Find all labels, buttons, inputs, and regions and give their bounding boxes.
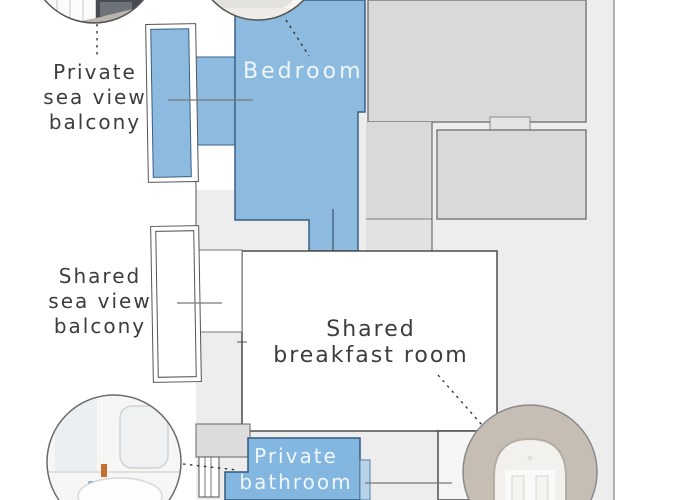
- shared-balcony-label: Shared sea view balcony: [15, 264, 185, 339]
- vestibule-upper: [366, 122, 432, 219]
- private-balcony-label: Private sea view balcony: [10, 60, 180, 135]
- shared-balcony-connector: [196, 250, 242, 332]
- breakfast-room-label: Shared breakfast room: [250, 317, 492, 369]
- private-balcony-label-line1: Private: [10, 60, 180, 85]
- bathroom-label-line2: bathroom: [228, 469, 364, 495]
- west-strip-white-mid: [196, 145, 236, 190]
- private-balcony-label-line3: balcony: [10, 110, 180, 135]
- gray-room-door-marker: [490, 117, 530, 130]
- bedroom-room: [235, 0, 365, 251]
- balcony-door-connector: [196, 57, 236, 145]
- bathroom-door-frame: [199, 457, 219, 497]
- breakfast-room-label-line1: Shared: [250, 317, 492, 343]
- floor-plan-stage: Private sea view balcony Shared sea view…: [0, 0, 675, 500]
- bathroom-photo: [47, 395, 181, 500]
- bathroom-label-line1: Private: [228, 443, 364, 469]
- private-balcony-label-line2: sea view: [10, 85, 180, 110]
- breakfast-room-label-line2: breakfast room: [250, 343, 492, 369]
- bathroom-label: Private bathroom: [228, 443, 364, 495]
- bedroom-label: Bedroom: [243, 59, 363, 84]
- shared-balcony-label-line1: Shared: [15, 264, 185, 289]
- shared-balcony-label-line2: sea view: [15, 289, 185, 314]
- shared-balcony-label-line3: balcony: [15, 314, 185, 339]
- gray-room-b: [437, 130, 586, 219]
- gray-room-a: [368, 0, 586, 122]
- private-balcony-photo: [30, 0, 160, 25]
